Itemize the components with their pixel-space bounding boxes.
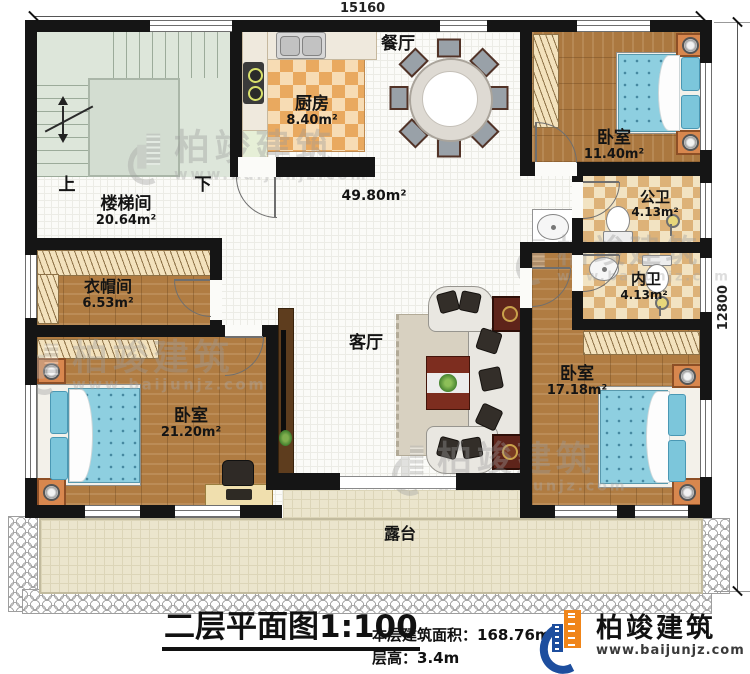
wash-basin [537, 214, 569, 240]
nightstand [672, 478, 702, 506]
pillow [668, 440, 686, 482]
dining-chair [390, 86, 409, 110]
floor-area-row: 本层建筑面积：168.76m² [372, 624, 557, 645]
room-label-dining: 餐厅 [381, 36, 415, 54]
extension-line [714, 591, 750, 592]
window [635, 505, 688, 518]
closet [37, 274, 59, 324]
room-area-public-bath: 4.13m² [631, 206, 678, 219]
top-dimension-label: 15160 [340, 1, 385, 16]
room-area-bedroom-top: 11.40m² [584, 148, 644, 162]
right-dimension-label: 12800 [716, 285, 731, 330]
window [700, 400, 712, 477]
room-label-living: 客厅 [349, 335, 383, 353]
living-dining-area: 49.80m² [341, 189, 406, 204]
room-label-terrace: 露台 [384, 526, 416, 543]
window [577, 20, 650, 32]
extension-line [714, 22, 750, 23]
window [175, 505, 240, 518]
nightstand-knob [682, 37, 699, 54]
closet [37, 250, 212, 276]
dining-chair [437, 39, 461, 58]
burner [248, 86, 263, 101]
coffee-table [426, 356, 470, 410]
window [25, 255, 37, 318]
window [700, 258, 712, 312]
right-dimension-line [737, 22, 738, 592]
room-label-ensuite-bath: 内卫 [631, 272, 661, 288]
bed-sheet-fold [69, 389, 93, 482]
nightstand [37, 358, 66, 384]
arrow-up-icon [58, 96, 68, 105]
desk-laptop [226, 489, 252, 500]
wall [520, 32, 532, 162]
wall [230, 32, 242, 177]
door-opening [572, 182, 583, 218]
closet [533, 34, 559, 128]
brand-website: www.baijunjz.com [596, 643, 745, 658]
brand-block: 柏竣建筑 www.baijunjz.com [540, 608, 745, 664]
kitchen-counter-green [242, 130, 268, 160]
burner [248, 68, 263, 83]
door-opening [520, 268, 532, 308]
side-table-decor [502, 444, 518, 460]
wall [266, 325, 278, 490]
wall [520, 242, 712, 253]
top-dimension-line [33, 16, 700, 17]
closet [37, 339, 159, 359]
tv [281, 330, 286, 432]
stair-landing [88, 78, 180, 177]
pillow [668, 394, 686, 436]
room-area-stairwell: 20.64m² [96, 214, 156, 228]
sofa-cushion [460, 436, 483, 459]
room-area-ensuite-bath: 4.13m² [620, 289, 667, 302]
window [440, 20, 487, 32]
wall [572, 319, 712, 330]
terrace-door [340, 476, 456, 489]
nightstand [37, 478, 66, 507]
brand-name: 柏竣建筑 [596, 614, 745, 644]
window [25, 385, 37, 478]
room-label-kitchen: 厨房 [295, 96, 329, 114]
door-opening [210, 280, 222, 320]
room-area-bedroom-left: 21.20m² [161, 426, 221, 440]
wall [25, 505, 282, 518]
sofa-cushion [478, 366, 504, 392]
window [150, 20, 232, 32]
terrace-floor [39, 518, 703, 594]
window [85, 505, 140, 518]
floor-height-label: 层高： [372, 649, 417, 667]
sofa-cushion [458, 290, 482, 314]
room-label-stairwell: 楼梯间 [101, 196, 152, 214]
room-area-bedroom-right: 17.18m² [547, 384, 607, 398]
stair-treads [113, 32, 230, 78]
window [700, 63, 712, 150]
room-label-bedroom-top: 卧室 [597, 130, 631, 148]
room-label-cloakroom: 衣帽间 [84, 279, 132, 296]
side-table-decor [502, 306, 518, 322]
floor-area-label: 本层建筑面积： [372, 626, 477, 644]
kitchen-sink [276, 32, 326, 59]
dining-table-top [422, 71, 478, 127]
closet [583, 331, 700, 355]
pillow [681, 57, 700, 91]
door-opening [535, 162, 577, 176]
stair-down-label: 下 [195, 177, 212, 195]
wall [456, 473, 530, 490]
room-label-bedroom-left: 卧室 [174, 408, 208, 426]
nightstand-knob [679, 484, 696, 501]
floor-height-row: 层高：3.4m [372, 647, 459, 668]
desk-chair [222, 460, 254, 486]
nightstand [672, 364, 702, 388]
brand-logo-icon [540, 608, 588, 664]
desk [205, 484, 273, 506]
stair-up-label: 上 [59, 177, 76, 195]
plan-title-text: 二层平面图 [164, 609, 319, 645]
bed-sheet-fold [658, 55, 680, 131]
door-opening [238, 157, 276, 177]
plant [439, 374, 457, 392]
arrow-down-icon [58, 134, 68, 143]
shower-stem [670, 224, 672, 236]
room-label-bedroom-right: 卧室 [560, 366, 594, 384]
sink-basin [280, 36, 300, 56]
door-opening [572, 255, 583, 291]
drain [551, 225, 556, 230]
nightstand-knob [679, 368, 696, 385]
stair-direction-line [62, 106, 64, 134]
plant [279, 430, 292, 446]
window [555, 505, 617, 518]
terrace-floor [283, 490, 520, 520]
pillow [50, 437, 68, 480]
stove [243, 62, 264, 104]
wall [278, 473, 340, 490]
floor-height-value: 3.4m [417, 649, 459, 667]
sink-basin [302, 36, 322, 56]
nightstand-knob [43, 484, 60, 501]
bed-sheet-fold [646, 391, 670, 483]
wall [25, 238, 222, 250]
room-area-cloakroom: 6.53m² [82, 297, 133, 311]
floor-plan-canvas: 15160 12800 上 下 楼梯间 20.64m² 厨房 8.40m² 餐厅 [0, 0, 750, 674]
window [700, 183, 712, 238]
pillow [50, 391, 68, 434]
room-label-public-bath: 公卫 [640, 190, 670, 206]
terrace-railing [700, 518, 730, 594]
shower-stem [659, 306, 661, 316]
room-area-kitchen: 8.40m² [286, 114, 337, 128]
nightstand-knob [682, 134, 699, 151]
pillow [681, 95, 700, 129]
nightstand-knob [43, 363, 60, 380]
